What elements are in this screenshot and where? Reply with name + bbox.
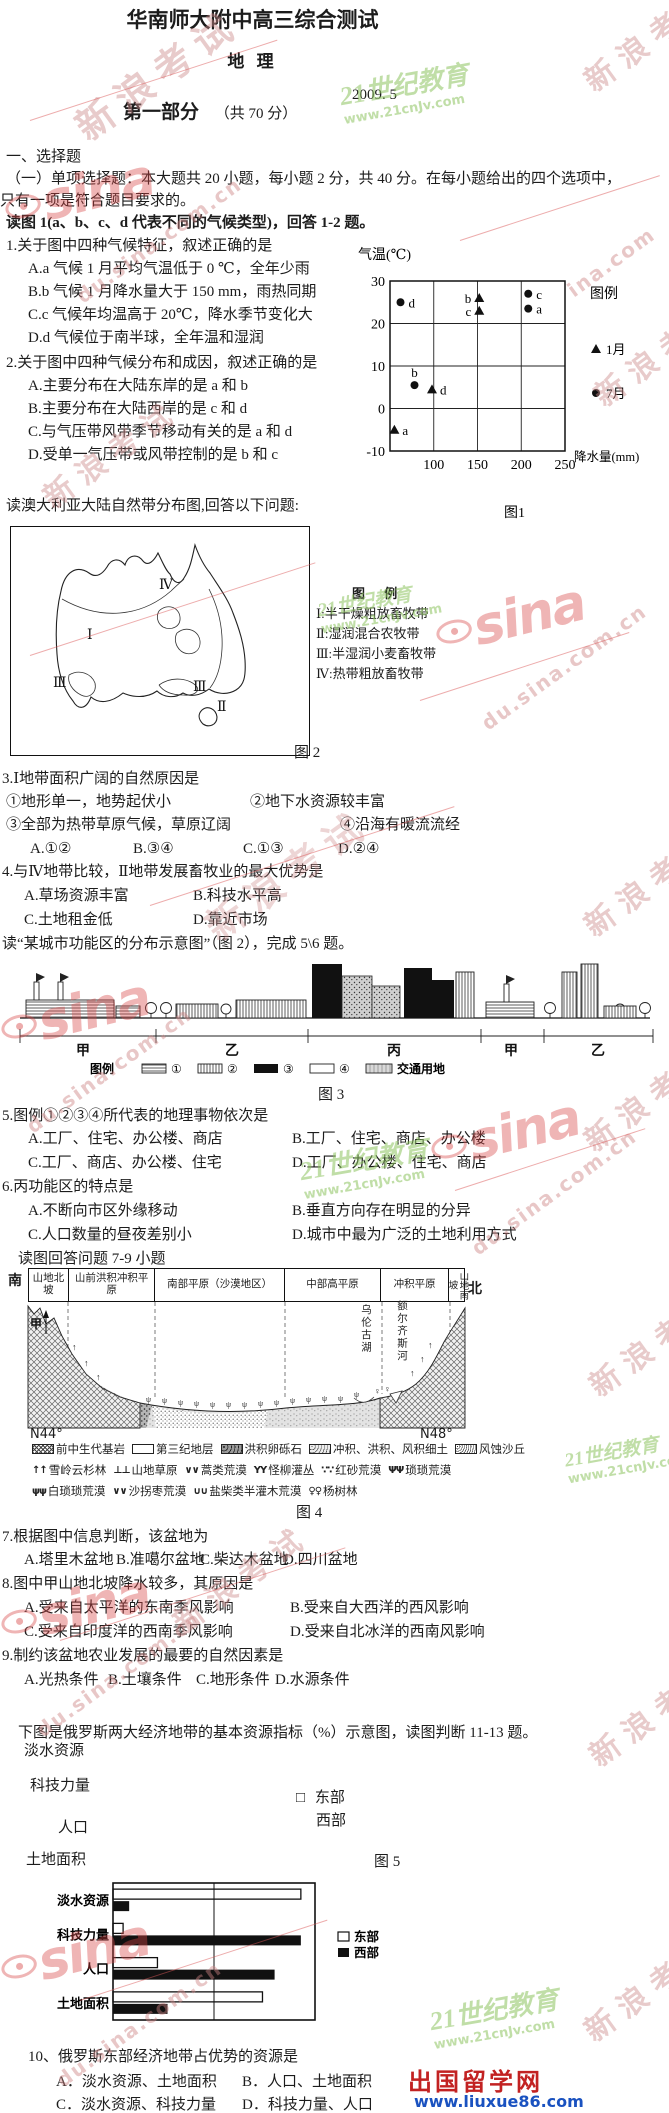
svg-text:人口: 人口 bbox=[83, 1962, 109, 1977]
svg-text:ψ: ψ bbox=[146, 1395, 151, 1404]
svg-text:10: 10 bbox=[371, 360, 385, 375]
svg-text:ψ: ψ bbox=[242, 1400, 247, 1409]
q10-option-c: C．淡水资源、科技力量 bbox=[56, 2096, 216, 2113]
svg-text:ψ: ψ bbox=[178, 1398, 183, 1407]
fig4-col-5: 冲积平原 bbox=[381, 1269, 449, 1301]
svg-text:ψ: ψ bbox=[258, 1399, 263, 1408]
svg-text:7月: 7月 bbox=[606, 386, 626, 401]
svg-text:↑: ↑ bbox=[428, 1340, 433, 1350]
q5-option-a: A.工厂、住宅、办公楼、商店 bbox=[28, 1130, 223, 1148]
tertiary-swatch bbox=[132, 1444, 154, 1454]
legend-label: 冲积、洪积、风积细土 bbox=[333, 1441, 448, 1457]
q8-option-b: B.受来自大西洋的西风影响 bbox=[290, 1599, 469, 1617]
q10-option-d: D．科技力量、人口 bbox=[242, 2096, 373, 2113]
factory-buildings bbox=[26, 973, 140, 1018]
q1-option-c: C.c 气候年均温高于 20℃，降水季节变化大 bbox=[28, 306, 313, 324]
part-title: 第一部分 bbox=[123, 102, 199, 123]
svg-text:-10: -10 bbox=[366, 445, 385, 460]
svg-text:ψ: ψ bbox=[274, 1398, 279, 1407]
legend-box-icon: □ bbox=[296, 1790, 305, 1806]
svg-text:ψ: ψ bbox=[290, 1396, 295, 1405]
sina-eye-icon bbox=[0, 1951, 39, 1982]
svg-text:d: d bbox=[409, 295, 416, 310]
q3-item-3: ③全部为热带草原气候，草原辽阔 bbox=[6, 816, 231, 834]
svg-text:1月: 1月 bbox=[606, 342, 626, 357]
svg-text:a: a bbox=[402, 423, 408, 438]
q6-option-a: A.不断向市区外缘移动 bbox=[28, 1202, 178, 1220]
q6-option-b: B.垂直方向存在明显的分异 bbox=[292, 1202, 471, 1220]
part-score: （共 70 分） bbox=[215, 106, 298, 122]
north-mountain bbox=[380, 1308, 465, 1428]
legend-label: 前中生代基岩 bbox=[56, 1441, 125, 1457]
spruce-icon: ↑↑ bbox=[32, 1465, 47, 1476]
saltwort-icon: ∪∪ bbox=[193, 1486, 207, 1497]
fig3-caption: 图 3 bbox=[318, 1086, 344, 1104]
subject-title: 地 理 bbox=[0, 52, 505, 72]
sina-exam-watermark: 新浪考 bbox=[579, 1299, 669, 1405]
q2-stem: 2.关于图中四种气候分布和成因，叙述正确的是 bbox=[6, 354, 317, 372]
q4-option-b: B.科技水平高 bbox=[193, 887, 282, 905]
q1-stem: 1.关于图中四种气候特征，叙述正确的是 bbox=[6, 237, 272, 255]
fig4-col-1: 山地北坡 bbox=[29, 1269, 69, 1301]
sina-url-watermark: du.sina.com.cn bbox=[477, 599, 652, 735]
fig2-legend-item: Ⅰ:半干燥粗放畜牧带 bbox=[316, 604, 436, 624]
fig4-col-3: 南部平原（沙漠地区） bbox=[155, 1269, 284, 1301]
svg-text:30: 30 bbox=[371, 275, 385, 290]
zone-label-ii: Ⅱ bbox=[217, 700, 227, 715]
fig5-caption: 图 5 bbox=[374, 1853, 400, 1871]
zone-yi2: 乙 bbox=[591, 1043, 605, 1059]
fig2-australia-map: Ⅳ Ⅰ Ⅲ Ⅲ Ⅱ bbox=[10, 526, 310, 756]
fig2-caption: 图 2 bbox=[294, 744, 320, 762]
legend-label: 雪岭云杉林 bbox=[49, 1462, 107, 1478]
sina-exam-watermark: 新浪考 bbox=[574, 1944, 669, 2050]
q9-option-b: B.土壤条件 bbox=[108, 1671, 182, 1689]
fig2-legend-item: Ⅳ:热带粗放畜牧带 bbox=[316, 664, 436, 684]
fig4-river-label: 额尔齐斯河 bbox=[394, 1300, 409, 1363]
page-title: 华南师大附中高三综合测试 bbox=[0, 8, 505, 33]
q5-option-b: B.工厂、住宅、商店、办公楼 bbox=[292, 1130, 486, 1148]
part-heading: 第一部分 （共 70 分） bbox=[123, 102, 297, 125]
q6-stem: 6.丙功能区的特点是 bbox=[2, 1178, 133, 1196]
fig4-col-4: 中部高平原 bbox=[285, 1269, 382, 1301]
fig5-resource-bar-chart: 淡水资源科技力量人口土地面积东部西部 bbox=[58, 1876, 408, 2028]
q3-item-4: ④沿海有暖流流经 bbox=[340, 816, 460, 834]
exam-page: 华南师大附中高三综合测试 地 理 2009. 5 第一部分 （共 70 分） 一… bbox=[0, 0, 669, 2113]
legend-label: 红砂荒漠 bbox=[335, 1462, 381, 1478]
q4-option-a: A.草场资源丰富 bbox=[24, 887, 129, 905]
fig4-legend-row1: 前中生代基岩 第三纪地层 洪积卵砾石 冲积、洪积、风积细土 风蚀沙丘 bbox=[32, 1441, 532, 1457]
zone-axis bbox=[20, 1029, 653, 1043]
fig4-col-2: 山前洪积冲积平原 bbox=[69, 1269, 156, 1301]
q10-option-b: B．人口、土地面积 bbox=[242, 2073, 372, 2091]
zone-jia1: 甲 bbox=[76, 1043, 90, 1059]
fig3-prompt: 读“某城市功能区的分布示意图”（图 2），完成 5\6 题。 bbox=[2, 935, 353, 953]
q8-option-c: C.受来自印度洋的西南季风影响 bbox=[24, 1623, 233, 1641]
svg-text:ψ: ψ bbox=[338, 1394, 343, 1403]
q6-option-c: C.人口数量的昼夜差别小 bbox=[28, 1226, 192, 1244]
q9-option-d: D.水源条件 bbox=[275, 1671, 350, 1689]
svg-text:0: 0 bbox=[378, 403, 385, 418]
grassland-icon: ⊥⊥ bbox=[113, 1465, 129, 1476]
fig3-legend-3: ③ bbox=[283, 1062, 294, 1076]
q5-option-c: C.工厂、商店、办公楼、住宅 bbox=[28, 1154, 222, 1172]
fig4-col-6: 山地南坡 bbox=[449, 1269, 464, 1301]
fig4-legend-row2: ↑↑雪岭云杉林 ⊥⊥山地草原 ∨∨蒿类荒漠 ΥΥ怪柳灌丛 ∵∵红砂荒漠 ΨΨ琐琐… bbox=[32, 1462, 458, 1478]
q2-option-d: D.受单一气压带或风带控制的是 b 和 c bbox=[28, 446, 278, 464]
q10-option-a: A．淡水资源、土地面积 bbox=[56, 2073, 217, 2091]
q4-option-d: D.靠近市场 bbox=[193, 911, 268, 929]
q3-option-b: B.③④ bbox=[133, 840, 174, 858]
q5-option-d: D.工厂、办公楼、住宅、商店 bbox=[292, 1154, 487, 1172]
zone-yi1: 乙 bbox=[225, 1043, 239, 1059]
svg-text:图1: 图1 bbox=[504, 506, 525, 521]
poplar-icon: ♀♀ bbox=[308, 1486, 321, 1497]
svg-text:降水量(mm): 降水量(mm) bbox=[574, 450, 639, 464]
fig4-north-label: 北 bbox=[468, 1282, 482, 1299]
legend-label: 盐柴类半灌木荒漠 bbox=[209, 1483, 301, 1499]
q6-option-d: D.城市中最为广泛的土地利用方式 bbox=[292, 1226, 517, 1244]
svg-text:200: 200 bbox=[511, 458, 532, 473]
q3-option-a: A.①② bbox=[30, 840, 71, 858]
fig4-jia-label: 甲 bbox=[30, 1317, 42, 1331]
wormwood-icon: ∨∨ bbox=[185, 1465, 199, 1476]
fig2-legend: 图 例 Ⅰ:半干燥粗放畜牧带 Ⅱ:湿润混合农牧带 Ⅲ:半湿润小麦畜牧带 Ⅳ:热带… bbox=[316, 584, 436, 684]
fig2-legend-title: 图 例 bbox=[352, 584, 436, 604]
saxaul-icon: ΨΨ bbox=[388, 1465, 403, 1476]
fig1-prompt: 读图 1(a、b、c、d 代表不同的气候类型)，回答 1-2 题。 bbox=[6, 214, 374, 232]
fig5-label-land: 土地面积 bbox=[26, 1851, 86, 1869]
section-heading: 一、选择题 bbox=[6, 148, 81, 166]
fig4-zone-header: 山地北坡 山前洪积冲积平原 南部平原（沙漠地区） 中部高平原 冲积平原 山地南坡 bbox=[28, 1268, 465, 1302]
fig2-legend-item: Ⅱ:湿润混合农牧带 bbox=[316, 624, 436, 644]
q2-option-b: B.主要分布在大陆西岸的是 c 和 d bbox=[28, 400, 247, 418]
instructions-line1: （一）单项选择题：本大题共 20 小题，每小题 2 分，共 40 分。在每小题给… bbox=[6, 170, 621, 188]
legend-label: 蒿类荒漠 bbox=[201, 1462, 247, 1478]
sina-exam-watermark: 新浪考 bbox=[579, 1669, 669, 1775]
sina-exam-watermark: 新浪考 bbox=[574, 0, 669, 100]
svg-text:ψ: ψ bbox=[162, 1396, 167, 1405]
svg-text:♀: ♀ bbox=[384, 1384, 391, 1394]
svg-text:ψ: ψ bbox=[194, 1399, 199, 1408]
white-saxaul-icon: ψψ bbox=[32, 1486, 46, 1497]
svg-text:150: 150 bbox=[467, 458, 488, 473]
q7-option-a: A.塔里木盆地 bbox=[24, 1551, 114, 1569]
svg-text:↑: ↑ bbox=[72, 1342, 77, 1352]
factory2 bbox=[486, 975, 534, 1018]
fig4-legend-row3: ψψ白琐琐荒漠 ∨∨沙拐枣荒漠 ∪∪盐柴类半灌木荒漠 ♀♀杨树林 bbox=[32, 1483, 365, 1499]
svg-text:ψ: ψ bbox=[210, 1400, 215, 1409]
svg-text:a: a bbox=[536, 302, 542, 317]
exam-date: 2009. 5 bbox=[352, 86, 397, 104]
fig5-ghost-legend-east: □ 东部 bbox=[296, 1789, 345, 1807]
svg-text:↑: ↑ bbox=[410, 1368, 415, 1378]
svg-text:西部: 西部 bbox=[354, 1945, 380, 1960]
svg-text:d: d bbox=[440, 382, 447, 397]
fig3-legend-title: 图例 bbox=[90, 1061, 114, 1076]
dune-swatch bbox=[455, 1444, 477, 1454]
q1-option-b: B.b 气候 1 月降水量大于 150 mm，雨热同期 bbox=[28, 283, 316, 301]
silt-swatch bbox=[309, 1444, 331, 1454]
q10-stem: 10、俄罗斯东部经济地带占优势的资源是 bbox=[28, 2048, 298, 2066]
sina-exam-watermark: 新浪考 bbox=[574, 839, 669, 945]
q3-option-d: D.②④ bbox=[338, 840, 379, 858]
q1-option-a: A.a 气候 1 月平均气温低于 0 ℃，全年少雨 bbox=[28, 260, 310, 278]
q7-stem: 7.根据图中信息判断，该盆地为 bbox=[2, 1528, 208, 1546]
zone-jia2: 甲 bbox=[504, 1043, 518, 1059]
q2-option-c: C.与气压带风带季节移动有关的是 a 和 d bbox=[28, 423, 292, 441]
svg-text:东部: 东部 bbox=[354, 1929, 380, 1944]
svg-text:c: c bbox=[465, 304, 471, 319]
tasmania-outline bbox=[199, 708, 217, 726]
fig5-label-freshwater: 淡水资源 bbox=[24, 1742, 84, 1760]
svg-text:20: 20 bbox=[371, 318, 385, 333]
q5-stem: 5.图例①②③④所代表的地理事物依次是 bbox=[2, 1107, 268, 1125]
zone-label-iii-s: Ⅲ bbox=[193, 680, 207, 695]
fig5-ghost-legend-west: 西部 bbox=[316, 1812, 346, 1830]
zone-label-iv: Ⅳ bbox=[159, 578, 174, 593]
svg-text:↑: ↑ bbox=[420, 1354, 425, 1364]
svg-text:科技力量: 科技力量 bbox=[57, 1927, 109, 1942]
svg-text:ψ: ψ bbox=[306, 1395, 311, 1404]
svg-text:淡水资源: 淡水资源 bbox=[57, 1893, 109, 1908]
fig5-label-tech: 科技力量 bbox=[30, 1777, 90, 1795]
svg-text:土地面积: 土地面积 bbox=[57, 1996, 109, 2011]
australia-outline bbox=[56, 545, 245, 707]
q3-stem: 3.Ⅰ地带面积广阔的自然原因是 bbox=[2, 770, 199, 788]
legend-label: 第三纪地层 bbox=[156, 1441, 214, 1457]
cn21-watermark: 21世纪教育www.21cnJv.com bbox=[562, 1425, 669, 1488]
svg-text:图例: 图例 bbox=[590, 286, 618, 302]
q9-option-a: A.光热条件 bbox=[24, 1671, 99, 1689]
svg-text:ψ: ψ bbox=[226, 1400, 231, 1409]
fig5-label-population: 人口 bbox=[58, 1819, 88, 1837]
zone-label-iii-sw: Ⅲ bbox=[53, 676, 67, 691]
legend-label: 洪积卵砾石 bbox=[245, 1441, 303, 1457]
svg-text:↑: ↑ bbox=[96, 1372, 101, 1382]
cn21-watermark: 21世纪教育www.21cnJv.com bbox=[426, 1979, 563, 2053]
q4-stem: 4.与Ⅳ地带比较，Ⅱ地带发展畜牧业的最大优势是 bbox=[2, 863, 323, 881]
fig4-south-label: 南 bbox=[8, 1274, 22, 1291]
svg-text:100: 100 bbox=[423, 458, 444, 473]
q1-option-d: D.d 气候位于南半球，全年温和湿润 bbox=[28, 329, 264, 347]
q3-item-2: ②地下水资源较丰富 bbox=[250, 793, 385, 811]
red-sand-icon: ∵∵ bbox=[321, 1465, 333, 1476]
rock-swatch bbox=[32, 1444, 54, 1454]
zone-bing: 丙 bbox=[387, 1043, 401, 1059]
q8-option-d: D.受来自北冰洋的西南风影响 bbox=[290, 1623, 485, 1641]
footer-site-url[interactable]: www.liuxue86.com bbox=[414, 2092, 584, 2111]
svg-text:♀: ♀ bbox=[374, 1386, 381, 1396]
gravel-swatch bbox=[221, 1444, 243, 1454]
fig3-legend-1: ① bbox=[171, 1062, 182, 1076]
svg-text:250: 250 bbox=[555, 458, 576, 473]
q3-item-1: ①地形单一，地势起伏小 bbox=[6, 793, 171, 811]
svg-text:气温(℃): 气温(℃) bbox=[358, 247, 411, 263]
fig3-legend: 图例 ① ② ③ ④ 交通用地 bbox=[90, 1061, 445, 1076]
instructions-line2: 只有一项是符合题目要求的。 bbox=[0, 192, 195, 210]
q4-option-c: C.土地租金低 bbox=[24, 911, 113, 929]
q7-option-d: D.四川盆地 bbox=[283, 1551, 358, 1569]
calligonum-icon: ∨∨ bbox=[112, 1486, 126, 1497]
fig2-prompt: 读澳大利亚大陆自然带分布图,回答以下问题: bbox=[6, 497, 299, 515]
sina-eye-icon bbox=[434, 616, 474, 647]
fig4-caption: 图 4 bbox=[296, 1504, 322, 1522]
svg-text:c: c bbox=[536, 287, 542, 302]
fig1-climate-scatter-chart: 3020100-10100150200250气温(℃)降水量(mm)图例1月7月… bbox=[352, 243, 669, 523]
legend-label: 风蚀沙丘 bbox=[479, 1441, 525, 1457]
scan-line-artifact bbox=[420, 632, 630, 701]
fig3-city-function-profile: 甲 乙 丙 甲 乙 图例 ① ② ③ ④ 交通用地 bbox=[8, 956, 658, 1084]
q2-option-a: A.主要分布在大陆东岸的是 a 和 b bbox=[28, 377, 248, 395]
q7-option-b: B.准噶尔盆地 bbox=[116, 1551, 205, 1569]
sina-logo-watermark: sina bbox=[430, 573, 591, 668]
legend-label: 杨树林 bbox=[323, 1483, 358, 1499]
svg-text:ψ: ψ bbox=[354, 1390, 359, 1399]
q9-stem: 9.制约该盆地农业发展的最要的自然因素是 bbox=[2, 1647, 283, 1665]
fig4-lake-label: 乌伦古湖 bbox=[358, 1304, 373, 1354]
svg-text:b: b bbox=[411, 365, 418, 380]
fig3-legend-2: ② bbox=[227, 1062, 238, 1076]
fig4-prompt: 读图回答问题 7-9 小题 bbox=[18, 1250, 166, 1268]
svg-text:ψ: ψ bbox=[322, 1394, 327, 1403]
legend-label: 白琐琐荒漠 bbox=[48, 1483, 106, 1499]
legend-label: 怪柳灌丛 bbox=[268, 1462, 314, 1478]
legend-label: 琐琐荒漠 bbox=[405, 1462, 451, 1478]
fig2-legend-item: Ⅲ:半湿润小麦畜牧带 bbox=[316, 644, 436, 664]
q7-option-c: C.柴达木盆地 bbox=[200, 1551, 289, 1569]
legend-label: 山地草原 bbox=[132, 1462, 178, 1478]
zone-label-i: Ⅰ bbox=[87, 628, 93, 643]
fig3-legend-traffic: 交通用地 bbox=[397, 1061, 445, 1076]
slope-forest-symbols: ↑↑↑ ↑↑↑ ♀♀ bbox=[72, 1340, 433, 1396]
q9-option-c: C.地形条件 bbox=[196, 1671, 270, 1689]
legend-label: 沙拐枣荒漠 bbox=[129, 1483, 187, 1499]
fig5-prompt: 下图是俄罗斯两大经济地带的基本资源指标（%）示意图，读图判断 11-13 题。 bbox=[18, 1724, 537, 1742]
q3-option-c: C.①③ bbox=[243, 840, 284, 858]
fig3-legend-4: ④ bbox=[339, 1062, 350, 1076]
q8-option-a: A.受来自太平洋的东南季风影响 bbox=[24, 1599, 234, 1617]
tamarisk-icon: ΥΥ bbox=[254, 1465, 266, 1476]
q8-stem: 8.图中甲山地北坡降水较多，其原因是 bbox=[2, 1575, 253, 1593]
svg-text:↑: ↑ bbox=[84, 1358, 89, 1368]
